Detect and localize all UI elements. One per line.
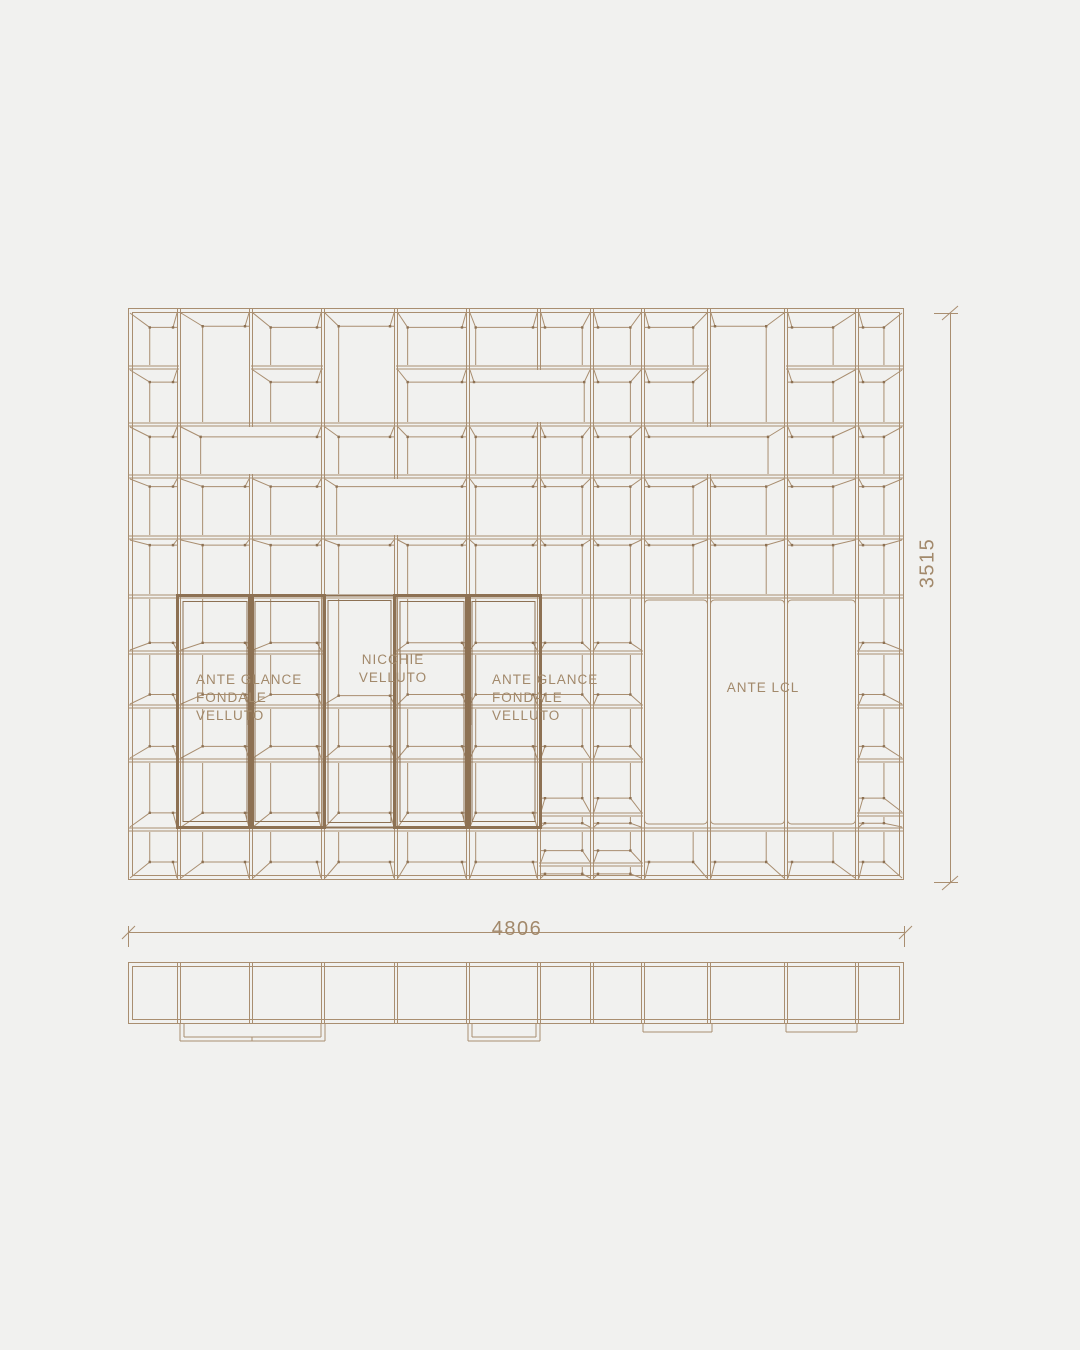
label-niche: NICCHIE VELLUTO <box>359 651 427 687</box>
label-door-left: ANTE GLANCE FONDALE VELLUTO <box>196 671 302 725</box>
label-ante-lcl: ANTE LCL <box>727 679 800 697</box>
width-dimension-text: 4806 <box>492 918 543 941</box>
label-door-right: ANTE GLANCE FONDALE VELLUTO <box>492 671 598 725</box>
height-dimension-text: 3515 <box>917 538 940 589</box>
technical-drawing-page: ANTE GLANCE FONDALE VELLUTO NICCHIE VELL… <box>0 0 1080 1350</box>
